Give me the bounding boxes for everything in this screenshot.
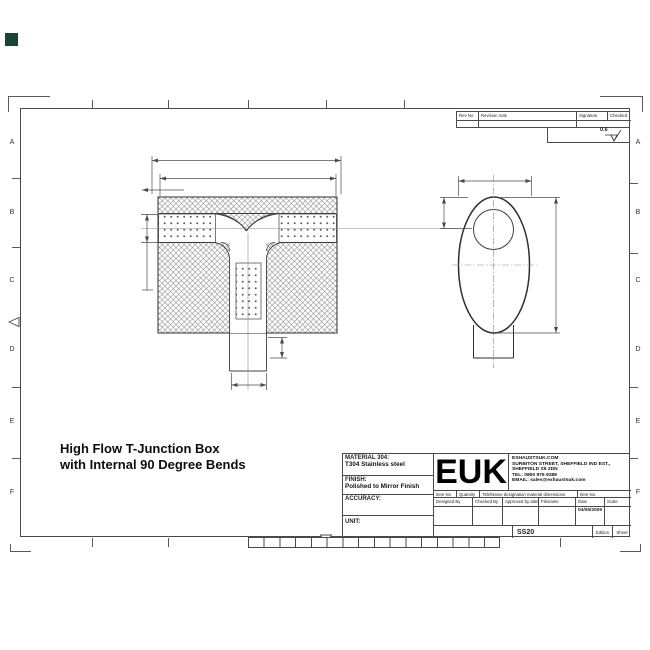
- value-scale: [605, 507, 631, 526]
- revision-row-note: [479, 121, 577, 129]
- revision-header-signature: Signature: [577, 112, 608, 121]
- revision-row-rev-no: [457, 121, 479, 129]
- header-quantity: Quantity: [457, 491, 480, 498]
- finish-value: Polished to Mirror Finish: [345, 483, 433, 490]
- unit-label: UNIT:: [345, 519, 433, 525]
- accuracy-cell: ACCURACY:: [343, 495, 434, 516]
- header-scale: Scale: [605, 498, 631, 507]
- company-logo: EUK: [434, 454, 509, 491]
- finish-cell: FINISH: Polished to Mirror Finish: [343, 476, 434, 495]
- surface-finish-icon: [603, 130, 623, 144]
- drawing-title-line2: with Internal 90 Degree Bends: [60, 457, 246, 473]
- revision-table: Rev No Revision note Signature Checked: [456, 111, 630, 128]
- front-section-view: [141, 197, 455, 390]
- company-line5: EMAIL: sales@exhaustsuk.com: [512, 478, 631, 484]
- edition-cell: Edition: [593, 526, 613, 538]
- material-cell: MATERIAL 304: T304 Stainless steel: [343, 454, 434, 476]
- part-number-cell: SS20: [513, 526, 593, 538]
- value-checked-by: [473, 507, 503, 526]
- sheet-cell: Sheet: [613, 526, 631, 538]
- revision-header-checked: Checked: [608, 112, 631, 121]
- drawing-sheet: A B C D E F A B C D E F: [0, 0, 650, 650]
- company-info: EXHAUSTSUK.COM SURBITON STREET, SHEFFIEL…: [509, 454, 631, 491]
- material-value: T304 Stainless steel: [345, 461, 433, 468]
- drawing-title-line1: High Flow T-Junction Box: [60, 441, 246, 457]
- side-end-view: [452, 175, 537, 368]
- value-designed-by: [434, 507, 473, 526]
- drawing-title: High Flow T-Junction Box with Internal 9…: [60, 441, 246, 472]
- accuracy-label: ACCURACY:: [345, 496, 433, 502]
- header-filename: Filename: [539, 498, 576, 507]
- title-block: MATERIAL 304: T304 Stainless steel FINIS…: [342, 453, 630, 537]
- header-title-name: Title/Name designation material dimensio…: [480, 491, 578, 498]
- header-item-no: Item No: [434, 491, 457, 498]
- value-approved-by: [503, 507, 539, 526]
- unit-cell: UNIT:: [343, 516, 434, 538]
- header-approved-by: Approved by date: [503, 498, 539, 507]
- value-filename: [539, 507, 576, 526]
- revision-header-note: Revision note: [479, 112, 577, 121]
- header-date: Date: [576, 498, 605, 507]
- header-designed-by: Designed By: [434, 498, 473, 507]
- value-date: 04/06/2009: [576, 507, 605, 526]
- revision-header-rev-no: Rev No: [457, 112, 479, 121]
- bottom-empty-cell: [434, 526, 513, 538]
- header-item-no2: Item No.: [578, 491, 631, 498]
- technical-drawing: [0, 0, 650, 650]
- header-checked-by: Checked By: [473, 498, 503, 507]
